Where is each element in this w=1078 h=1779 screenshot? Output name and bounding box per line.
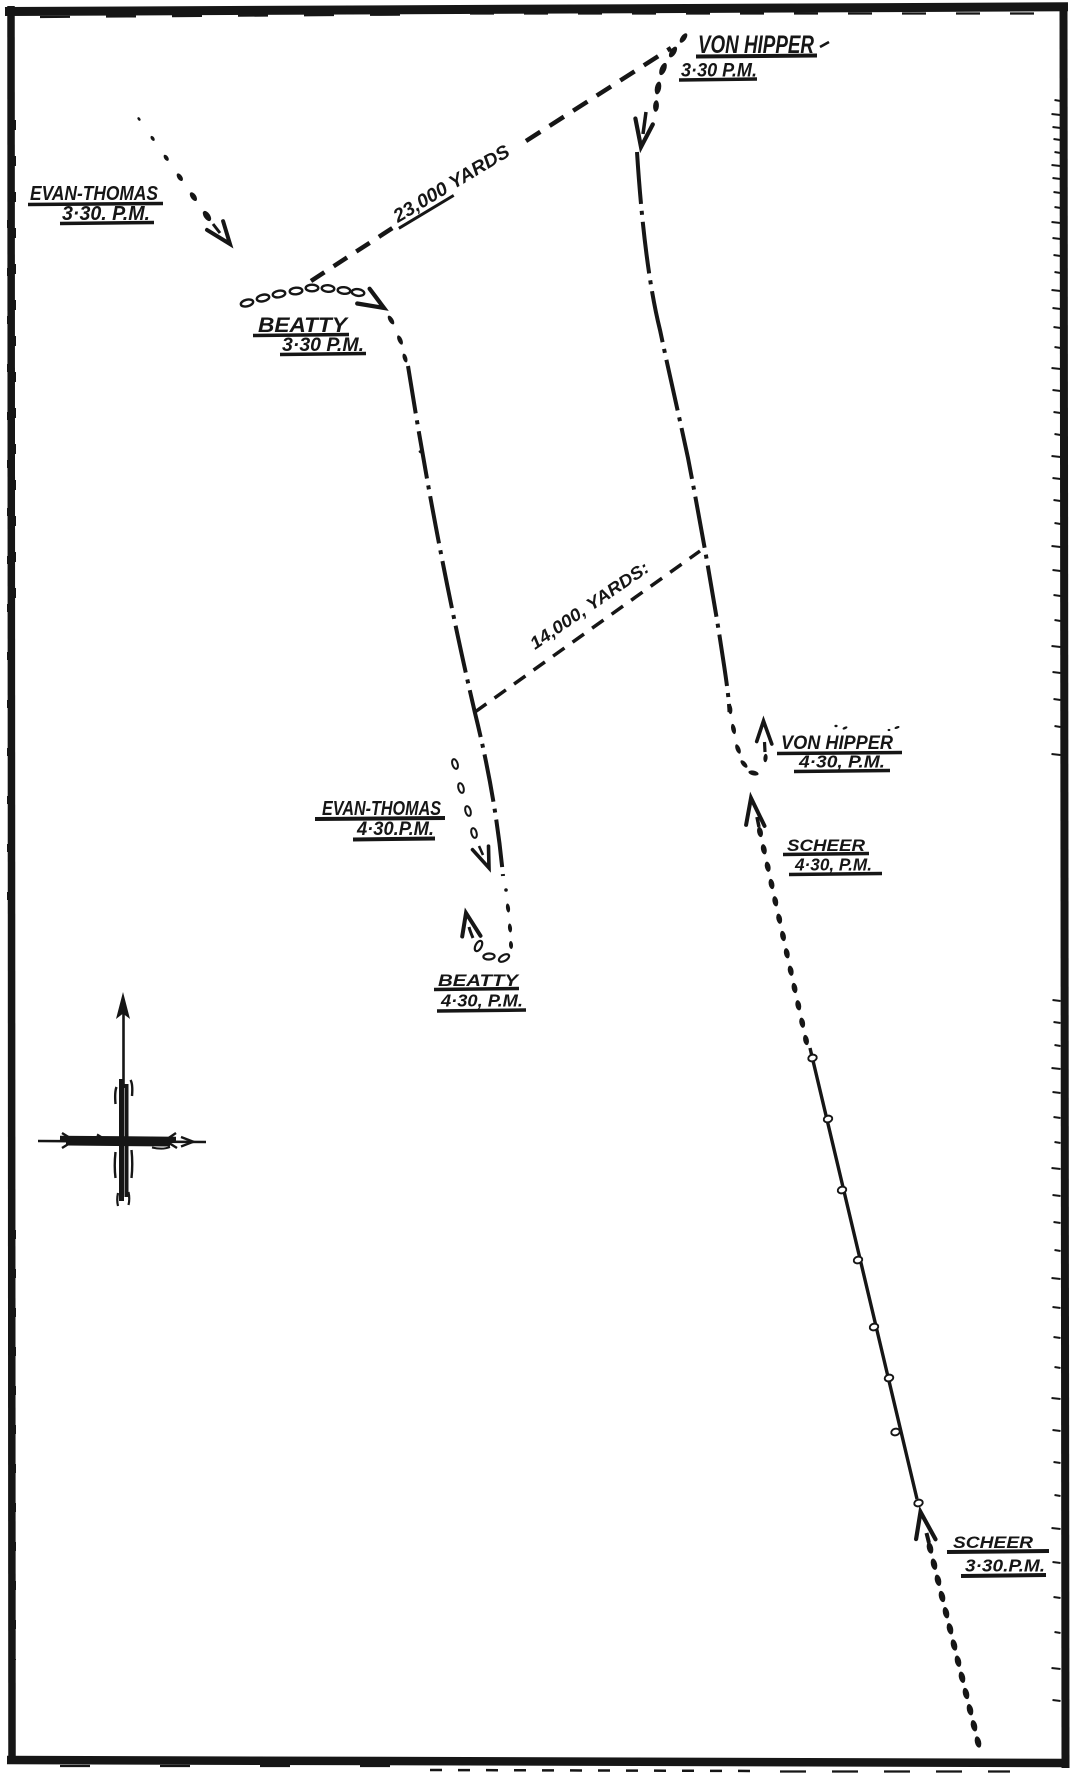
svg-text:EVAN-THOMAS: EVAN-THOMAS (30, 183, 159, 205)
svg-text:4·30, P.M.: 4·30, P.M. (794, 855, 872, 875)
svg-text:SCHEER: SCHEER (953, 1533, 1034, 1552)
svg-text:3·30.P.M.: 3·30.P.M. (965, 1556, 1045, 1576)
svg-text:4·30, P.M.: 4·30, P.M. (798, 752, 885, 772)
svg-text:4·30, P.M.: 4·30, P.M. (440, 991, 523, 1011)
